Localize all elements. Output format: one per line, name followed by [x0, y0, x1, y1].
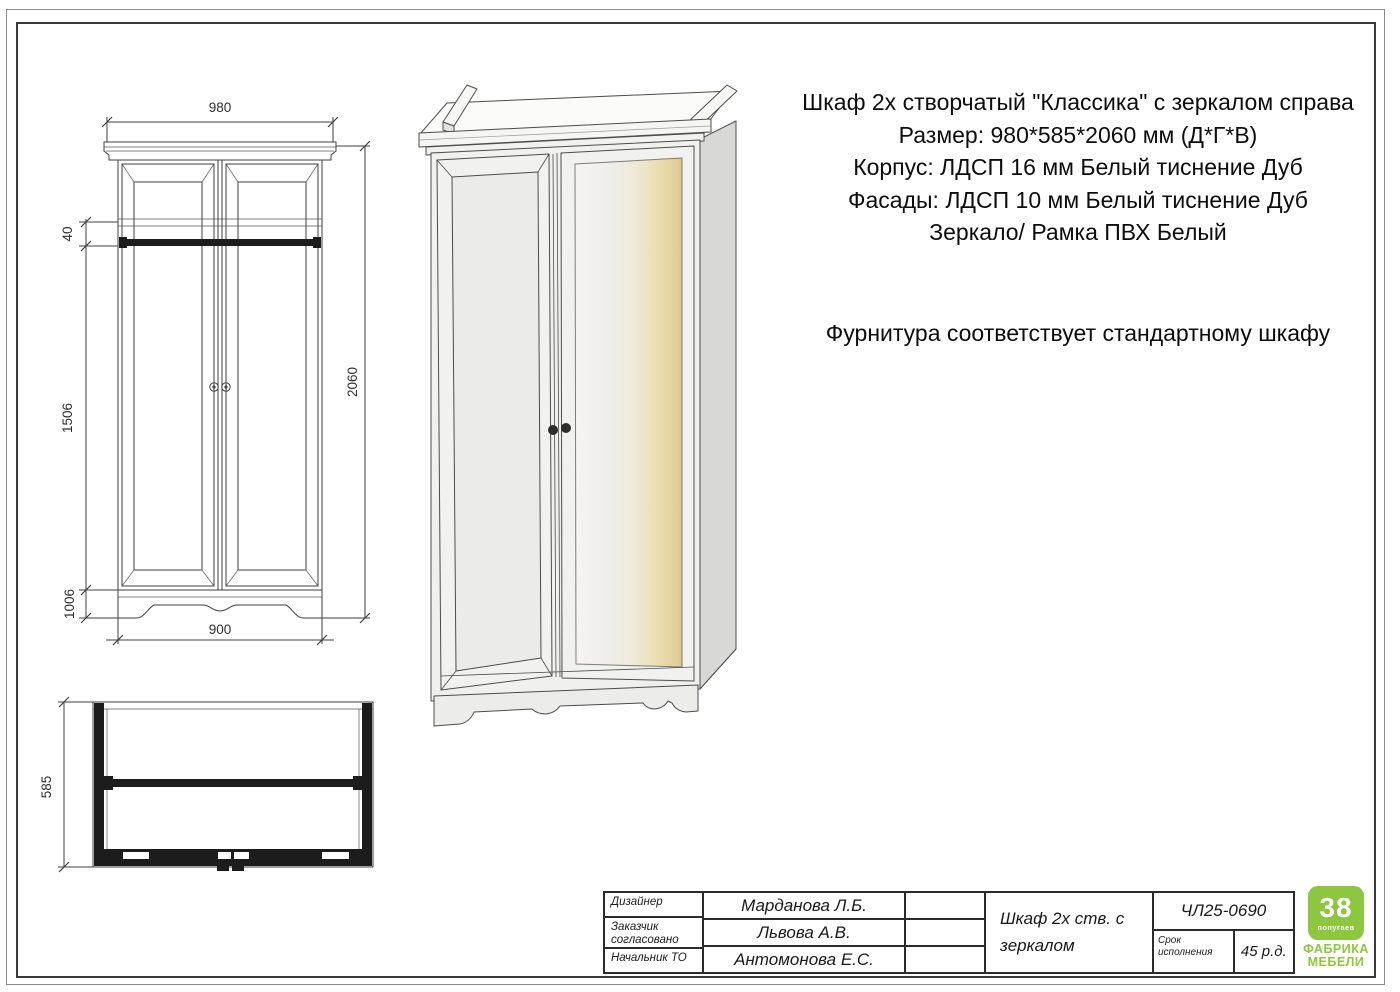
front-view-drawing: 980 900 2060	[60, 100, 370, 645]
role-label-designer: Дизайнер	[605, 893, 702, 918]
top-view-drawing: 585	[39, 697, 373, 872]
spec-facade-material: Фасады: ЛДСП 10 мм Белый тиснение Дуб	[768, 184, 1388, 217]
spec-size: Размер: 980*585*2060 мм (Д*Г*В)	[768, 119, 1388, 152]
spec-text-block: Шкаф 2х створчатый "Классика" с зеркалом…	[768, 86, 1388, 249]
spec-mirror-material: Зеркало/ Рамка ПВХ Белый	[768, 216, 1388, 249]
logo-caption: ФАБРИКА МЕБЕЛИ	[1300, 943, 1372, 969]
front-dim-width-top: 980	[209, 100, 232, 115]
logo-badge: 38 попугаев	[1308, 886, 1364, 940]
document-code: ЧЛ25-0690	[1154, 893, 1293, 931]
front-dim-rail-gap: 40	[60, 226, 75, 241]
empty-cell	[906, 893, 984, 920]
front-dim-door-height: 1506	[60, 403, 75, 433]
customer-name: Львова А.В.	[704, 920, 904, 947]
empty-cell	[906, 947, 984, 972]
logo-caption-line2: МЕБЕЛИ	[1300, 956, 1372, 969]
title-block-names-column: Марданова Л.Б. Львова А.В. Антомонова Е.…	[704, 893, 906, 972]
role-label-customer: Заказчик согласовано	[605, 918, 702, 949]
front-dim-width-bottom: 900	[209, 622, 232, 637]
spec-title: Шкаф 2х створчатый "Классика" с зеркалом…	[768, 86, 1388, 119]
title-block: Дизайнер Заказчик согласовано Начальник …	[603, 891, 1295, 974]
product-name-cell: Шкаф 2х ств. с зеркалом	[986, 893, 1154, 972]
chief-name: Антомонова Е.С.	[704, 947, 904, 972]
spec-body-material: Корпус: ЛДСП 16 мм Белый тиснение Дуб	[768, 151, 1388, 184]
deadline-label: Срок исполнения	[1154, 931, 1235, 972]
title-block-labels-column: Дизайнер Заказчик согласовано Начальник …	[605, 893, 704, 972]
title-block-empty-column	[906, 893, 986, 972]
hardware-note: Фурнитура соответствует стандартному шка…	[773, 320, 1383, 347]
logo-subtitle: попугаев	[1317, 923, 1354, 932]
front-dim-height: 2060	[345, 367, 360, 397]
factory-logo: 38 попугаев ФАБРИКА МЕБЕЛИ	[1300, 886, 1372, 969]
deadline-row: Срок исполнения 45 р.д.	[1154, 931, 1293, 972]
top-dim-depth: 585	[39, 776, 54, 799]
render-3d	[419, 85, 737, 726]
role-label-chief: Начальник ТО	[605, 949, 702, 972]
deadline-value: 45 р.д.	[1235, 931, 1293, 972]
empty-cell	[906, 920, 984, 947]
front-dim-plinth: 1006	[62, 589, 77, 619]
logo-number: 38	[1319, 894, 1352, 922]
designer-name: Марданова Л.Б.	[704, 893, 904, 920]
title-block-code-column: ЧЛ25-0690 Срок исполнения 45 р.д.	[1154, 893, 1293, 972]
